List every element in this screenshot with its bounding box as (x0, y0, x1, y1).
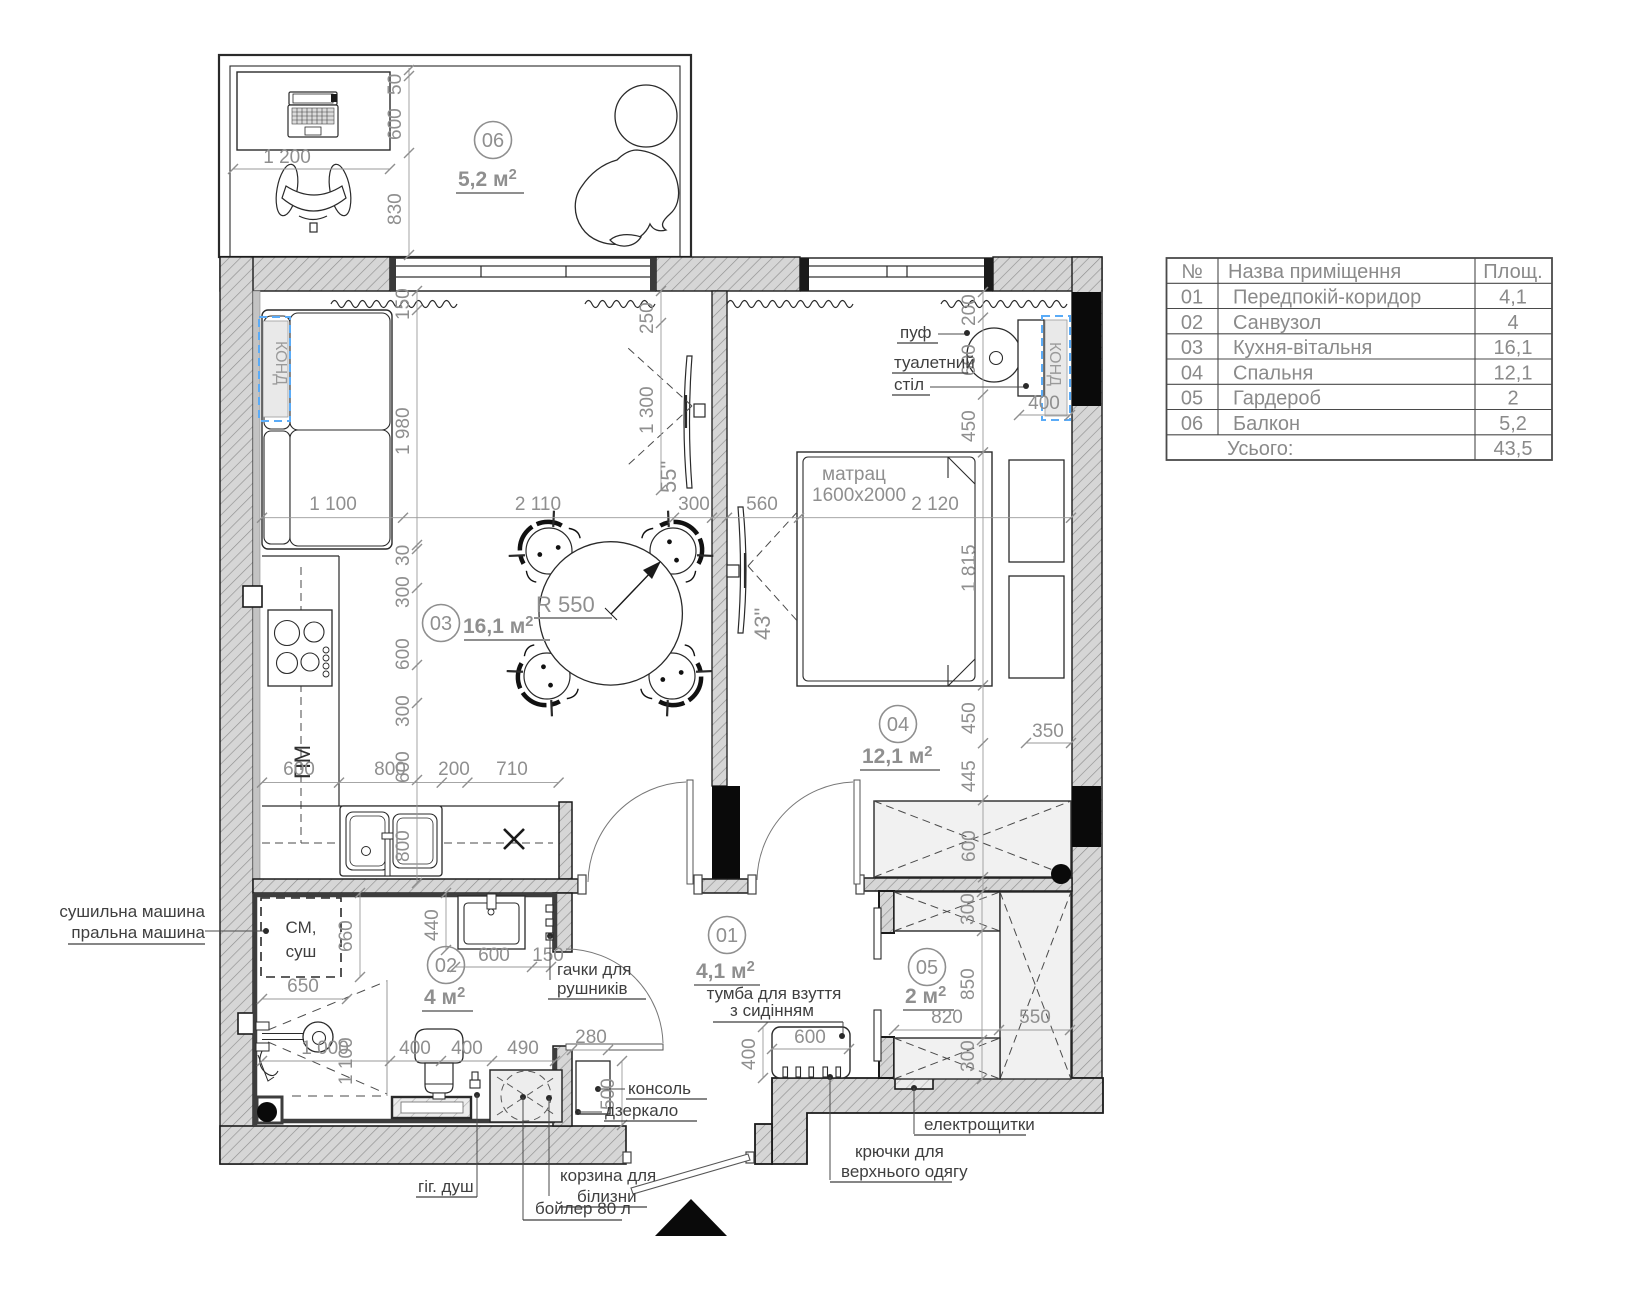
svg-text:650: 650 (287, 976, 319, 997)
svg-text:05: 05 (1181, 388, 1203, 410)
svg-text:450: 450 (959, 702, 980, 734)
svg-text:50: 50 (385, 74, 406, 95)
svg-text:1 200: 1 200 (263, 147, 311, 168)
svg-text:пральна машина: пральна машина (71, 923, 205, 942)
svg-text:крючки для: крючки для (855, 1142, 944, 1161)
svg-text:600: 600 (959, 830, 980, 862)
svg-text:43": 43" (750, 608, 775, 640)
svg-text:Спальня: Спальня (1233, 362, 1313, 384)
svg-text:5,2 м2: 5,2 м2 (458, 167, 517, 191)
svg-text:445: 445 (959, 760, 980, 792)
svg-text:560: 560 (746, 494, 778, 515)
svg-text:бойлер 80 л: бойлер 80 л (535, 1199, 631, 1218)
svg-text:рушників: рушників (557, 979, 628, 998)
svg-text:КОНД: КОНД (1046, 342, 1063, 386)
svg-text:200: 200 (959, 294, 980, 326)
svg-text:490: 490 (507, 1038, 539, 1059)
svg-text:корзина для: корзина для (560, 1166, 656, 1185)
svg-text:710: 710 (496, 759, 528, 780)
svg-text:01: 01 (716, 925, 738, 947)
svg-text:400: 400 (399, 1038, 431, 1059)
svg-text:300: 300 (393, 695, 414, 727)
svg-text:СМ,: СМ, (286, 918, 317, 937)
svg-text:300: 300 (958, 893, 979, 925)
svg-text:12,1 м2: 12,1 м2 (862, 744, 932, 768)
svg-text:1 100: 1 100 (309, 494, 357, 515)
svg-text:стіл: стіл (894, 375, 924, 394)
svg-text:2: 2 (1507, 388, 1518, 410)
svg-text:600: 600 (385, 108, 406, 140)
svg-text:02: 02 (435, 955, 457, 977)
svg-text:гачки для: гачки для (557, 960, 631, 979)
svg-text:Санвузол: Санвузол (1233, 312, 1321, 334)
svg-text:пуф: пуф (900, 323, 932, 342)
svg-text:01: 01 (1181, 287, 1203, 309)
svg-text:800: 800 (374, 759, 406, 780)
svg-text:830: 830 (385, 193, 406, 225)
svg-text:КОНД: КОНД (272, 341, 289, 385)
svg-text:гіг. душ: гіг. душ (418, 1177, 474, 1196)
svg-text:280: 280 (575, 1027, 607, 1048)
svg-text:450: 450 (959, 410, 980, 442)
svg-text:600: 600 (393, 638, 414, 670)
svg-text:04: 04 (1181, 362, 1203, 384)
svg-text:600: 600 (283, 759, 315, 780)
svg-text:Балкон: Балкон (1233, 413, 1300, 435)
svg-text:400: 400 (451, 1038, 483, 1059)
svg-text:верхнього одягу: верхнього одягу (841, 1162, 968, 1181)
svg-text:300: 300 (678, 494, 710, 515)
svg-text:400: 400 (1028, 393, 1060, 414)
svg-text:1600х2000: 1600х2000 (812, 485, 906, 506)
svg-text:№: № (1181, 261, 1202, 283)
svg-text:1 300: 1 300 (637, 386, 658, 434)
svg-text:1 100: 1 100 (336, 1037, 357, 1085)
svg-text:600: 600 (478, 945, 510, 966)
svg-text:660: 660 (336, 920, 357, 952)
svg-text:04: 04 (887, 714, 909, 736)
svg-text:Гардероб: Гардероб (1233, 388, 1321, 410)
svg-text:сушильна машина: сушильна машина (59, 902, 205, 921)
svg-text:06: 06 (482, 130, 504, 152)
svg-text:Площ.: Площ. (1483, 261, 1542, 283)
svg-text:300: 300 (393, 576, 414, 608)
svg-text:02: 02 (1181, 312, 1203, 334)
svg-text:400: 400 (739, 1038, 760, 1070)
svg-text:16,1: 16,1 (1494, 337, 1533, 359)
svg-text:250: 250 (637, 302, 658, 334)
svg-text:4,1: 4,1 (1499, 287, 1527, 309)
svg-text:туалетний: туалетний (894, 353, 975, 372)
svg-text:350: 350 (1032, 721, 1064, 742)
svg-text:електрощитки: електрощитки (924, 1115, 1035, 1134)
svg-text:03: 03 (430, 613, 452, 635)
svg-text:300: 300 (958, 1040, 979, 1072)
svg-text:600: 600 (794, 1027, 826, 1048)
svg-text:Усього:: Усього: (1227, 438, 1293, 460)
svg-text:440: 440 (422, 909, 443, 941)
svg-text:2 110: 2 110 (515, 494, 561, 515)
svg-text:дзеркало: дзеркало (605, 1101, 678, 1120)
svg-text:матрац: матрац (822, 464, 886, 485)
svg-text:55": 55" (656, 461, 681, 493)
svg-text:12,1: 12,1 (1494, 362, 1533, 384)
svg-text:з сидінням: з сидінням (730, 1001, 814, 1020)
svg-text:суш: суш (286, 942, 317, 961)
svg-text:06: 06 (1181, 413, 1203, 435)
svg-text:150: 150 (393, 288, 414, 320)
svg-text:550: 550 (1019, 1007, 1051, 1028)
svg-text:30: 30 (393, 545, 414, 566)
svg-text:4: 4 (1507, 312, 1518, 334)
svg-text:Передпокій-коридор: Передпокій-коридор (1233, 287, 1421, 309)
svg-text:16,1 м2: 16,1 м2 (463, 614, 533, 638)
svg-text:Кухня-вітальня: Кухня-вітальня (1233, 337, 1372, 359)
svg-text:43,5: 43,5 (1494, 438, 1533, 460)
svg-text:4,1 м2: 4,1 м2 (696, 959, 755, 983)
svg-text:05: 05 (916, 957, 938, 979)
svg-text:Назва приміщення: Назва приміщення (1228, 261, 1401, 283)
svg-text:5,2: 5,2 (1499, 413, 1527, 435)
svg-text:R 550: R 550 (536, 592, 595, 617)
svg-text:03: 03 (1181, 337, 1203, 359)
svg-text:консоль: консоль (628, 1079, 691, 1098)
svg-text:1 815: 1 815 (959, 544, 980, 592)
svg-text:850: 850 (958, 968, 979, 1000)
svg-text:2 120: 2 120 (911, 494, 959, 515)
svg-text:800: 800 (393, 830, 414, 862)
svg-text:200: 200 (438, 759, 470, 780)
svg-text:1 980: 1 980 (393, 407, 414, 455)
